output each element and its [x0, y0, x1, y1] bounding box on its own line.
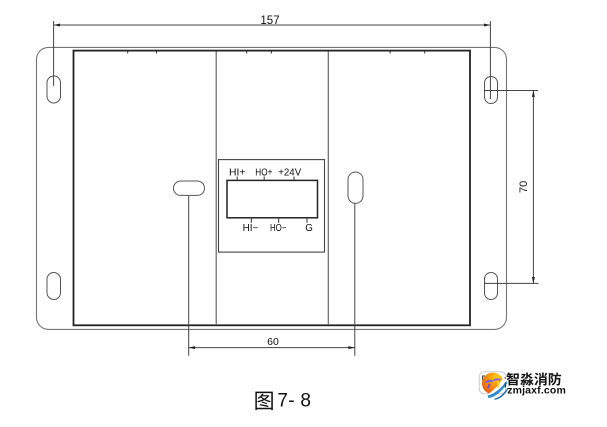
- svg-text:+24V: +24V: [278, 168, 301, 179]
- svg-text:157: 157: [260, 15, 279, 27]
- svg-text:G: G: [305, 223, 313, 234]
- svg-text:HI+: HI+: [229, 168, 246, 179]
- svg-text:60: 60: [267, 336, 279, 348]
- svg-text:HO+: HO+: [255, 168, 272, 179]
- svg-text:HI−: HI−: [243, 223, 259, 234]
- svg-text:70: 70: [518, 181, 530, 193]
- svg-text:HO−: HO−: [270, 223, 287, 234]
- svg-text:7- 8: 7- 8: [277, 391, 311, 412]
- svg-text:zmjaxf.com: zmjaxf.com: [507, 384, 566, 396]
